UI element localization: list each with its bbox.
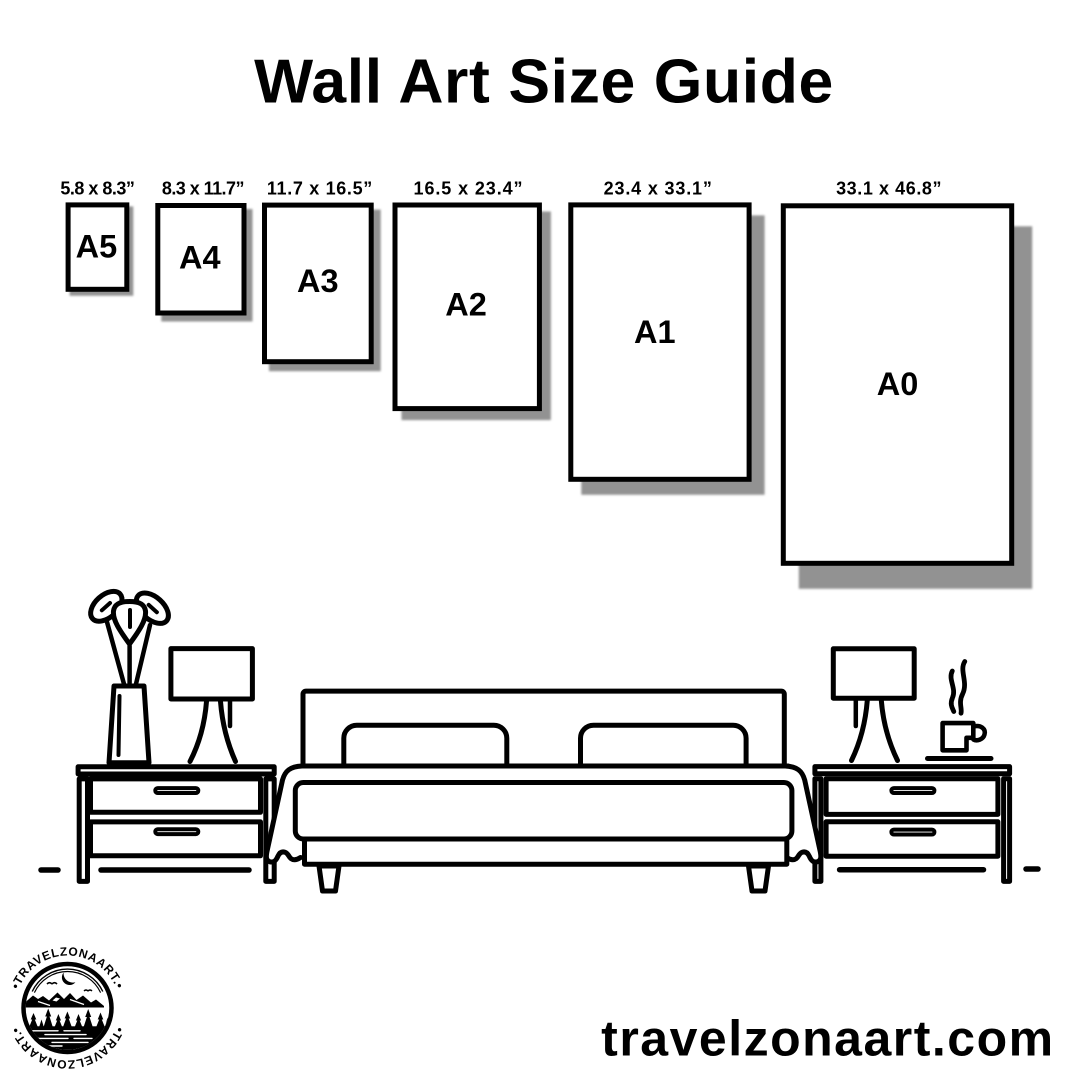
svg-text:33.1 x 46.8”: 33.1 x 46.8” [836, 179, 942, 199]
svg-text:23.4 x 33.1”: 23.4 x 33.1” [604, 179, 713, 199]
svg-text:8.3 x 11.7”: 8.3 x 11.7” [162, 179, 244, 199]
svg-text:A1: A1 [634, 314, 676, 350]
svg-text:11.7 x 16.5”: 11.7 x 16.5” [267, 179, 373, 199]
svg-text:A5: A5 [76, 229, 118, 265]
svg-text:Wall Art Size Guide: Wall Art Size Guide [254, 47, 834, 117]
svg-text:5.8 x 8.3”: 5.8 x 8.3” [60, 179, 134, 199]
svg-text:A4: A4 [179, 239, 221, 275]
svg-text:A0: A0 [877, 366, 919, 402]
svg-text:16.5 x 23.4”: 16.5 x 23.4” [414, 179, 524, 199]
svg-text:travelzonaart.com: travelzonaart.com [601, 1011, 1054, 1067]
svg-text:A2: A2 [445, 287, 487, 323]
svg-text:A3: A3 [297, 263, 339, 299]
